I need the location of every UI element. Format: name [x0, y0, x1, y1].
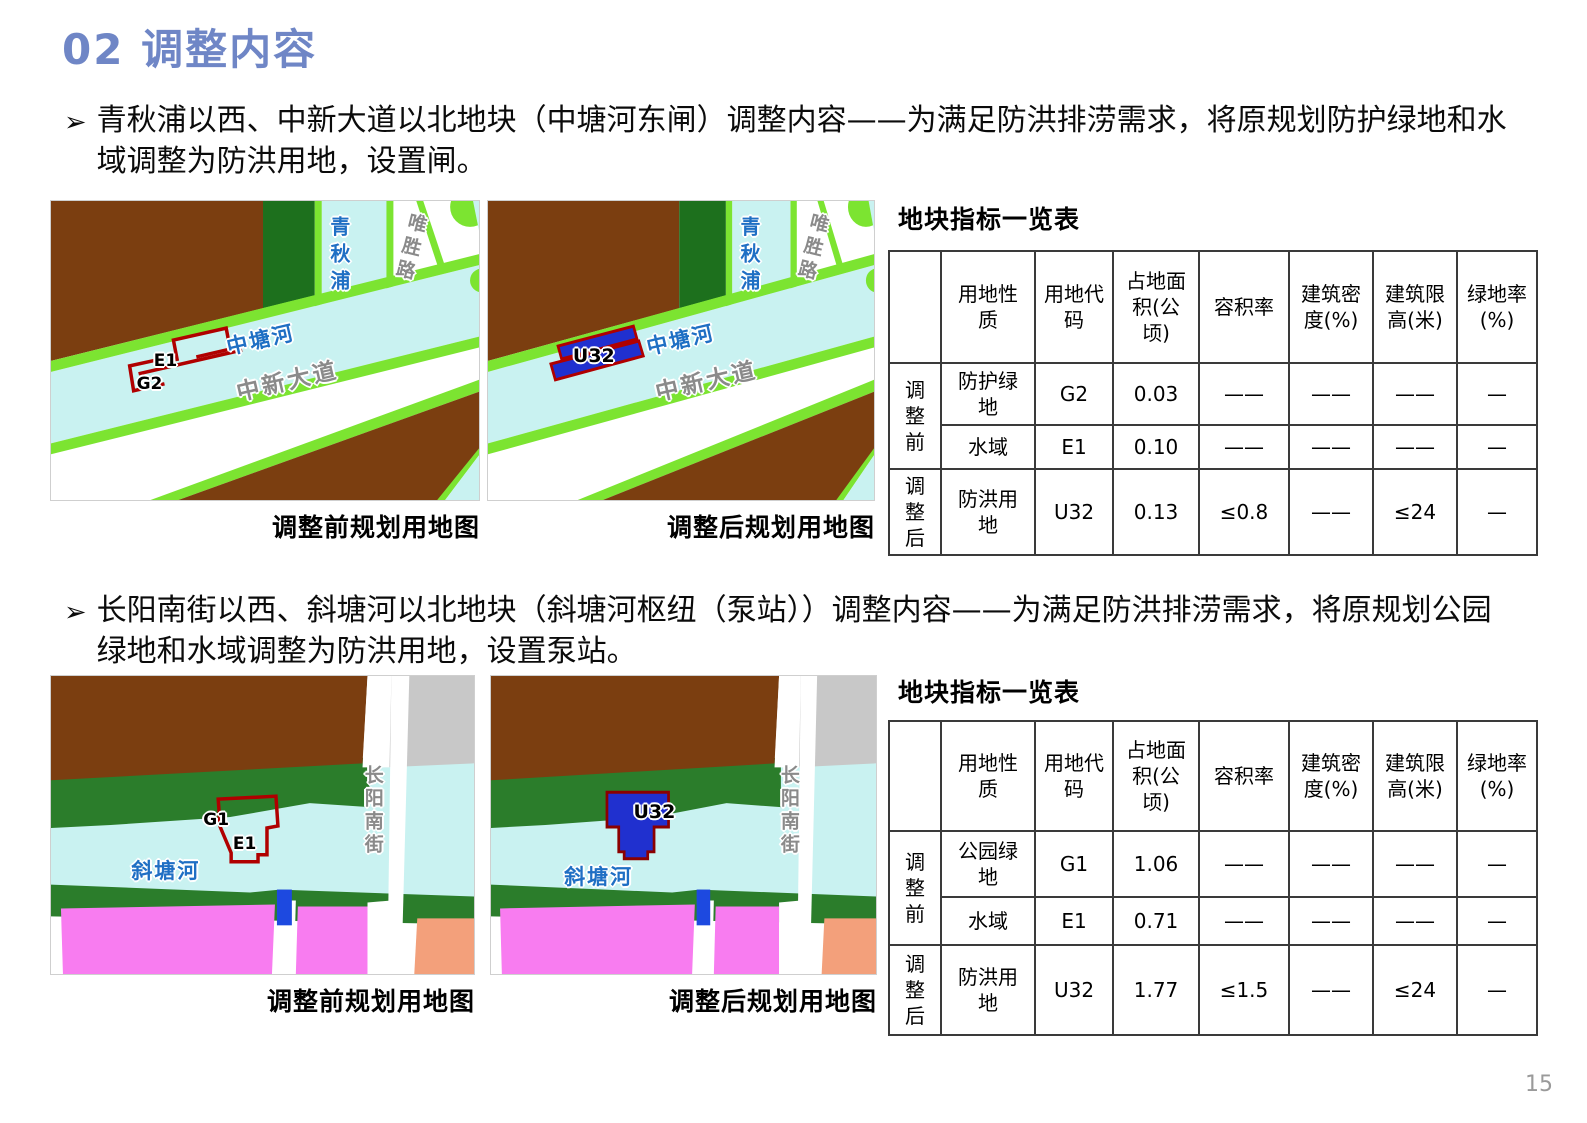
table-group-cell: 调整后 [889, 945, 941, 1035]
bullet-item-1: ➢ 青秋浦以西、中新大道以北地块（中塘河东闸）调整内容——为满足防洪排涝需求，将… [64, 100, 1509, 183]
table-header-cell: 用地性质 [941, 251, 1035, 363]
table-cell: U32 [1035, 945, 1113, 1035]
table-cell: —— [1373, 897, 1457, 945]
river-label-qingqiupu: 青秋浦 [735, 216, 764, 297]
slide: 02 调整内容 ➢ 青秋浦以西、中新大道以北地块（中塘河东闸）调整内容——为满足… [0, 0, 1587, 1123]
bullet-text-2: 长阳南街以西、斜塘河以北地块（斜塘河枢纽（泵站））调整内容——为满足防洪排涝需求… [97, 590, 1509, 673]
map-caption-before-1: 调整前规划用地图 [50, 508, 480, 544]
indicator-table-1: 用地性质 用地代码 占地面积(公顷) 容积率 建筑密度(%) 建筑限高(米) 绿… [888, 250, 1538, 556]
table-cell: G1 [1035, 831, 1113, 897]
table-cell: 防护绿地 [941, 363, 1035, 425]
table-cell: 1.06 [1113, 831, 1199, 897]
table-header-cell: 建筑限高(米) [1373, 721, 1457, 831]
table-cell: — [1457, 831, 1537, 897]
map-canvas [51, 676, 474, 974]
map-caption-before-2: 调整前规划用地图 [50, 982, 475, 1018]
table-header-cell: 容积率 [1199, 251, 1289, 363]
table-header-row: 用地性质 用地代码 占地面积(公顷) 容积率 建筑密度(%) 建筑限高(米) 绿… [889, 251, 1537, 363]
table-cell: —— [1199, 363, 1289, 425]
table-group-cell: 调整前 [889, 831, 941, 945]
parcel-label-e1: E1 [233, 834, 256, 854]
table-corner-cell [889, 721, 941, 831]
table-cell: —— [1289, 831, 1373, 897]
bullet-arrow-icon: ➢ [64, 104, 87, 141]
table-cell: E1 [1035, 897, 1113, 945]
table-cell: —— [1373, 425, 1457, 469]
table-cell: 0.13 [1113, 469, 1199, 555]
table-header-cell: 建筑密度(%) [1289, 721, 1373, 831]
table-cell: —— [1199, 831, 1289, 897]
table-row: 调整后 防洪用地 U32 0.13 ≤0.8 —— ≤24 — [889, 469, 1537, 555]
map-canvas [491, 676, 876, 974]
table-row: 水域 E1 0.71 —— —— —— — [889, 897, 1537, 945]
bullet-arrow-icon: ➢ [64, 594, 87, 631]
table-cell: ≤24 [1373, 469, 1457, 555]
table-header-cell: 占地面积(公顷) [1113, 721, 1199, 831]
river-label-qingqiupu: 青秋浦 [325, 216, 354, 297]
table-header-cell: 占地面积(公顷) [1113, 251, 1199, 363]
parcel-label-e1: E1 [154, 351, 177, 371]
table-header-cell: 容积率 [1199, 721, 1289, 831]
table-title-2: 地块指标一览表 [898, 673, 1080, 709]
table-header-row: 用地性质 用地代码 占地面积(公顷) 容积率 建筑密度(%) 建筑限高(米) 绿… [889, 721, 1537, 831]
table-cell: 防洪用地 [941, 469, 1035, 555]
table-cell: ≤24 [1373, 945, 1457, 1035]
river-label-xietanghe: 斜塘河 [564, 861, 633, 891]
page-number: 15 [1525, 1072, 1553, 1097]
table-group-cell: 调整前 [889, 363, 941, 469]
table-cell: 水域 [941, 897, 1035, 945]
parcel-label-g2: G2 [137, 374, 163, 394]
table-row: 水域 E1 0.10 —— —— —— — [889, 425, 1537, 469]
table-cell: —— [1289, 897, 1373, 945]
table-header-cell: 绿地率(%) [1457, 721, 1537, 831]
page-title: 02 调整内容 [62, 16, 317, 77]
table-cell: 水域 [941, 425, 1035, 469]
table-cell: —— [1199, 425, 1289, 469]
table-cell: 0.10 [1113, 425, 1199, 469]
table-cell: — [1457, 945, 1537, 1035]
table-cell: —— [1289, 469, 1373, 555]
map-after-zhongtang: 青秋浦 唯胜路 中塘河 中新大道 U32 [487, 200, 875, 501]
table-cell: E1 [1035, 425, 1113, 469]
table-cell: —— [1373, 831, 1457, 897]
table-corner-cell [889, 251, 941, 363]
map-caption-after-1: 调整后规划用地图 [487, 508, 875, 544]
table-cell: —— [1289, 425, 1373, 469]
table-cell: ≤0.8 [1199, 469, 1289, 555]
map-caption-after-2: 调整后规划用地图 [490, 982, 877, 1018]
table-row: 调整前 防护绿地 G2 0.03 —— —— —— — [889, 363, 1537, 425]
table-cell: 公园绿地 [941, 831, 1035, 897]
table-header-cell: 绿地率(%) [1457, 251, 1537, 363]
table-header-cell: 建筑限高(米) [1373, 251, 1457, 363]
table-cell: —— [1289, 363, 1373, 425]
parcel-label-u32: U32 [633, 801, 675, 823]
map-before-zhongtang: 青秋浦 唯胜路 中塘河 中新大道 E1 G2 [50, 200, 480, 501]
table-header-cell: 用地性质 [941, 721, 1035, 831]
table-cell: —— [1199, 897, 1289, 945]
table-cell: — [1457, 897, 1537, 945]
road-label-changyangnanjie: 长阳南街 [360, 765, 387, 857]
table-header-cell: 用地代码 [1035, 721, 1113, 831]
table-cell: G2 [1035, 363, 1113, 425]
table-cell: — [1457, 363, 1537, 425]
table-cell: 防洪用地 [941, 945, 1035, 1035]
parcel-label-g1: G1 [203, 810, 229, 830]
road-label-changyangnanjie: 长阳南街 [776, 765, 803, 857]
table-cell: —— [1373, 363, 1457, 425]
table-cell: — [1457, 469, 1537, 555]
table-cell: —— [1289, 945, 1373, 1035]
table-cell: U32 [1035, 469, 1113, 555]
parcel-label-u32: U32 [573, 345, 615, 367]
map-before-xietang: 长阳南街 斜塘河 G1 E1 [50, 675, 475, 975]
indicator-table-2: 用地性质 用地代码 占地面积(公顷) 容积率 建筑密度(%) 建筑限高(米) 绿… [888, 720, 1538, 1036]
table-cell: 0.03 [1113, 363, 1199, 425]
table-cell: — [1457, 425, 1537, 469]
table-row: 调整后 防洪用地 U32 1.77 ≤1.5 —— ≤24 — [889, 945, 1537, 1035]
river-label-xietanghe: 斜塘河 [131, 855, 200, 885]
table-title-1: 地块指标一览表 [898, 200, 1080, 236]
table-header-cell: 用地代码 [1035, 251, 1113, 363]
map-after-xietang: 长阳南街 斜塘河 U32 [490, 675, 877, 975]
bullet-text-1: 青秋浦以西、中新大道以北地块（中塘河东闸）调整内容——为满足防洪排涝需求，将原规… [97, 100, 1509, 183]
table-cell: 0.71 [1113, 897, 1199, 945]
table-cell: 1.77 [1113, 945, 1199, 1035]
table-cell: ≤1.5 [1199, 945, 1289, 1035]
table-header-cell: 建筑密度(%) [1289, 251, 1373, 363]
table-group-cell: 调整后 [889, 469, 941, 555]
table-row: 调整前 公园绿地 G1 1.06 —— —— —— — [889, 831, 1537, 897]
bullet-item-2: ➢ 长阳南街以西、斜塘河以北地块（斜塘河枢纽（泵站））调整内容——为满足防洪排涝… [64, 590, 1509, 673]
